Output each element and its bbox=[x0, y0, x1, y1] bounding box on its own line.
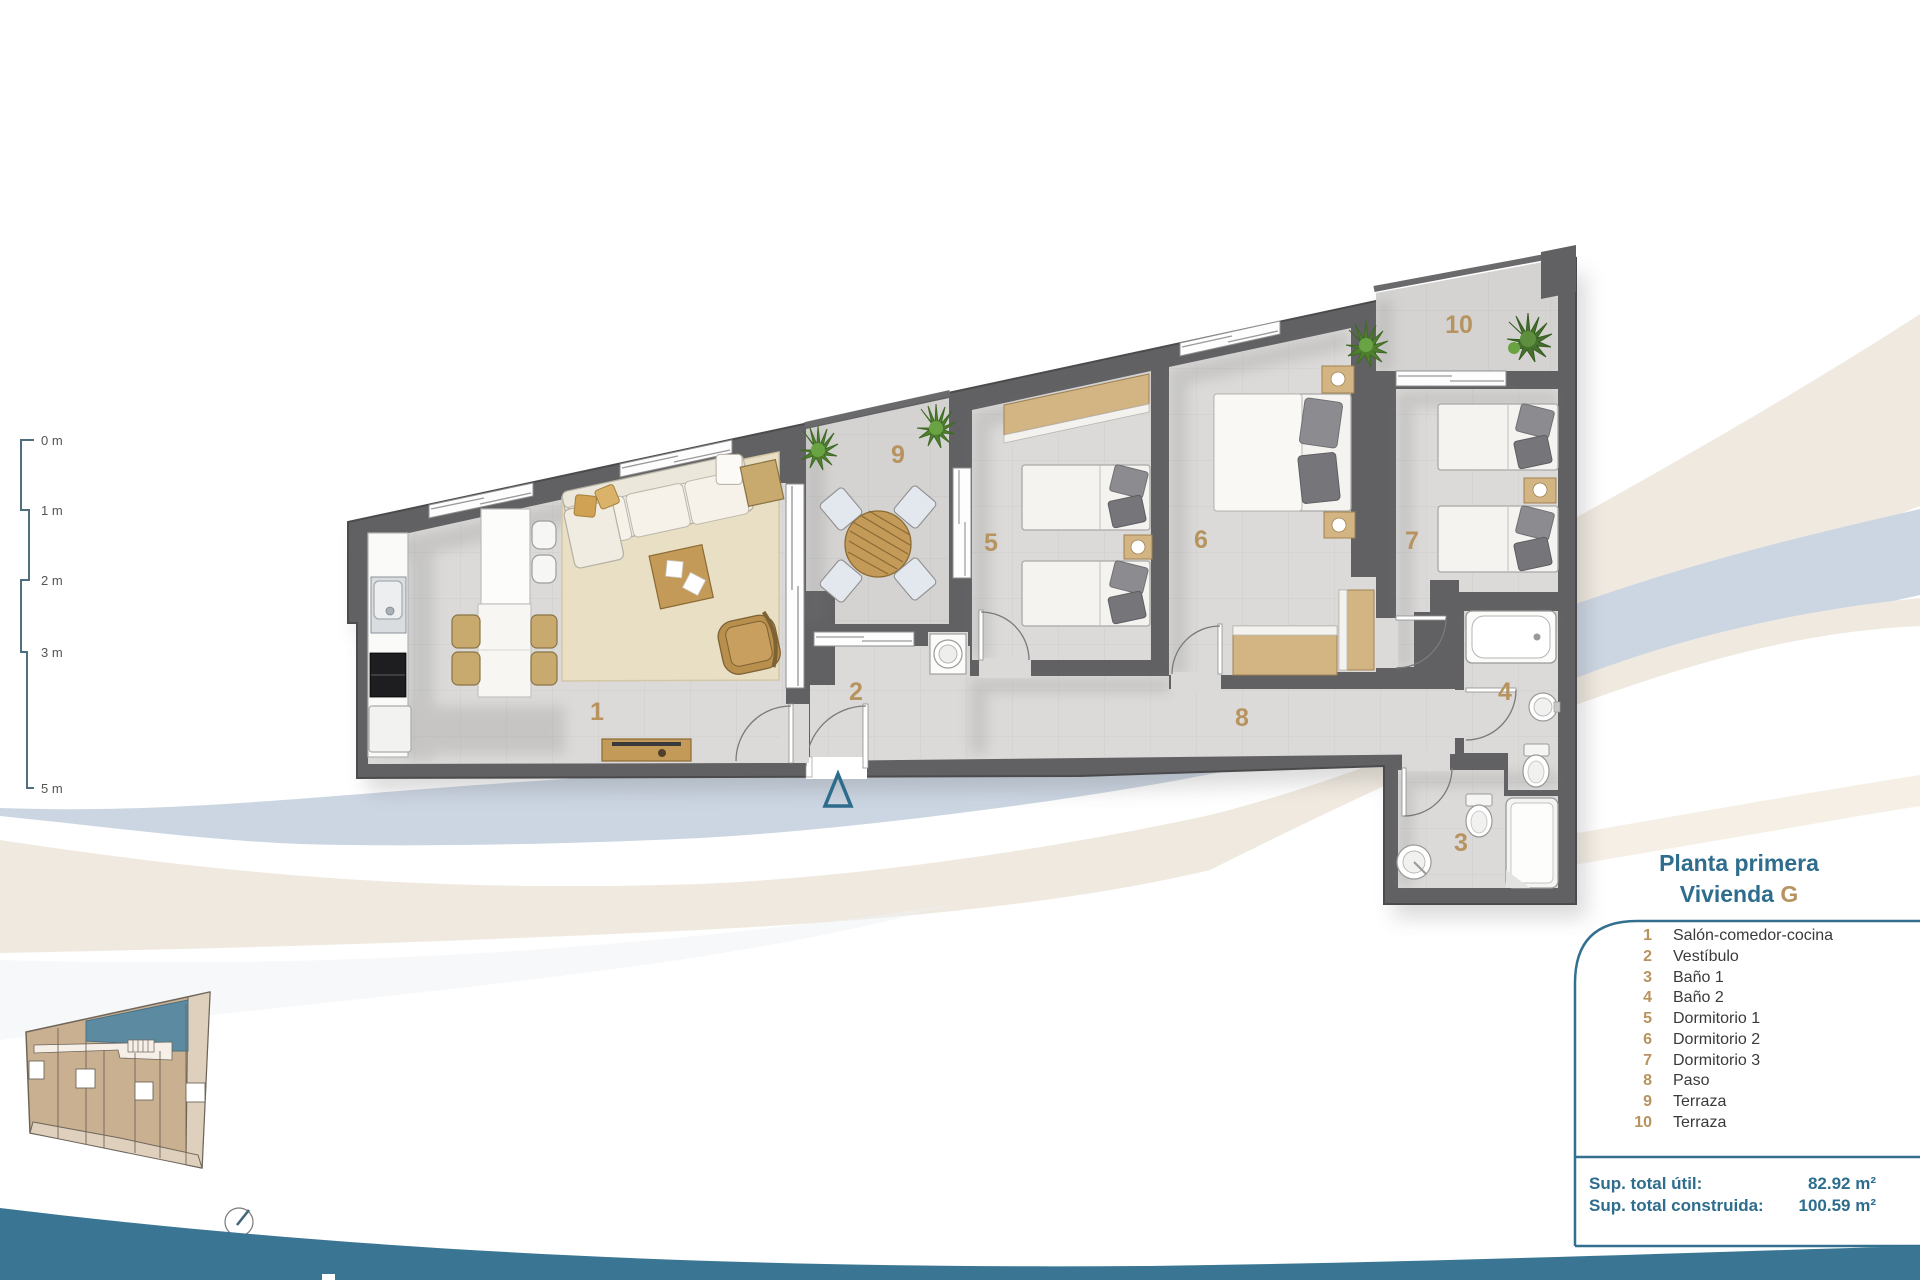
svg-text:Sup. total útil:: Sup. total útil: bbox=[1589, 1174, 1702, 1193]
svg-text:100.59 m²: 100.59 m² bbox=[1799, 1196, 1877, 1215]
svg-text:Dormitorio 3: Dormitorio 3 bbox=[1673, 1052, 1760, 1069]
svg-text:Paso: Paso bbox=[1673, 1072, 1710, 1089]
svg-text:Salón-comedor-cocina: Salón-comedor-cocina bbox=[1673, 927, 1833, 944]
svg-text:7: 7 bbox=[1643, 1052, 1652, 1069]
svg-text:7: 7 bbox=[1405, 527, 1419, 555]
svg-text:6: 6 bbox=[1643, 1031, 1652, 1048]
svg-text:Vestíbulo: Vestíbulo bbox=[1673, 948, 1739, 965]
svg-text:Terraza: Terraza bbox=[1673, 1114, 1726, 1131]
svg-text:9: 9 bbox=[891, 441, 905, 469]
svg-text:4: 4 bbox=[1498, 678, 1512, 706]
svg-text:Baño 2: Baño 2 bbox=[1673, 989, 1724, 1006]
svg-text:0 m: 0 m bbox=[41, 433, 63, 448]
svg-text:Vivienda G: Vivienda G bbox=[1680, 881, 1798, 907]
svg-text:8: 8 bbox=[1643, 1072, 1652, 1089]
svg-text:1: 1 bbox=[1643, 927, 1652, 944]
svg-text:3 m: 3 m bbox=[41, 645, 63, 660]
svg-text:1: 1 bbox=[590, 698, 604, 726]
svg-text:Planta primera: Planta primera bbox=[1659, 850, 1819, 876]
svg-text:Terraza: Terraza bbox=[1673, 1093, 1726, 1110]
svg-text:5: 5 bbox=[1643, 1010, 1652, 1027]
svg-text:2 m: 2 m bbox=[41, 573, 63, 588]
svg-text:82.92 m²: 82.92 m² bbox=[1808, 1174, 1876, 1193]
svg-text:6: 6 bbox=[1194, 526, 1208, 554]
svg-text:Sup. total construida:: Sup. total construida: bbox=[1589, 1196, 1764, 1215]
svg-text:10: 10 bbox=[1634, 1114, 1652, 1131]
svg-text:Baño 1: Baño 1 bbox=[1673, 969, 1724, 986]
svg-text:Dormitorio 1: Dormitorio 1 bbox=[1673, 1010, 1760, 1027]
svg-text:3: 3 bbox=[1454, 829, 1468, 857]
svg-text:4: 4 bbox=[1643, 989, 1652, 1006]
svg-text:2: 2 bbox=[849, 678, 863, 706]
svg-text:Dormitorio 2: Dormitorio 2 bbox=[1673, 1031, 1760, 1048]
svg-text:2: 2 bbox=[1643, 948, 1652, 965]
svg-text:8: 8 bbox=[1235, 704, 1249, 732]
svg-text:5: 5 bbox=[984, 529, 998, 557]
svg-text:10: 10 bbox=[1445, 311, 1473, 339]
svg-text:9: 9 bbox=[1643, 1093, 1652, 1110]
svg-text:1 m: 1 m bbox=[41, 503, 63, 518]
svg-text:3: 3 bbox=[1643, 969, 1652, 986]
svg-text:5 m: 5 m bbox=[41, 781, 63, 796]
